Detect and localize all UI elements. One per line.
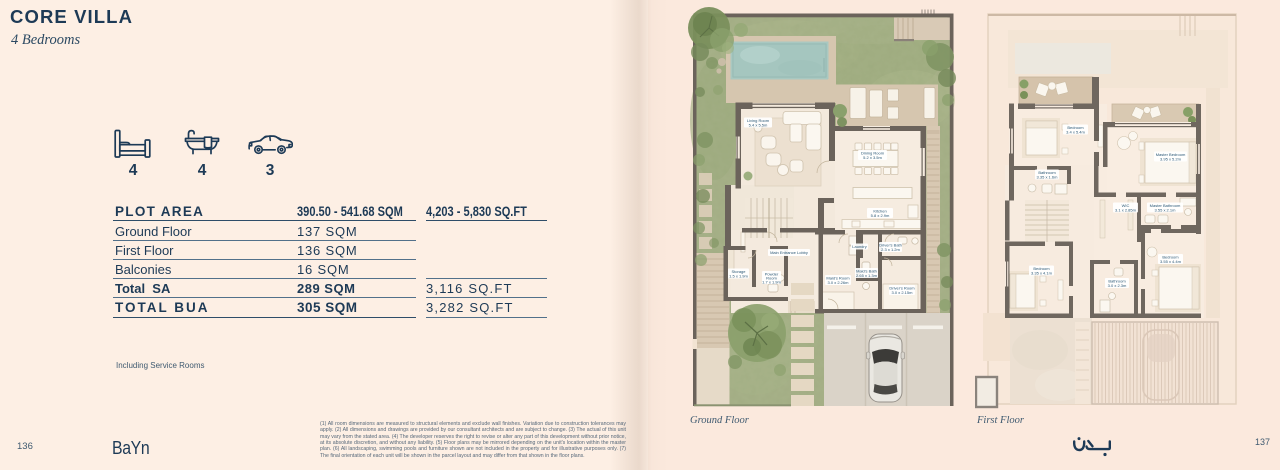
svg-text:3.0 x 2.26m: 3.0 x 2.26m	[828, 280, 850, 285]
svg-text:5.4 x 5.5m: 5.4 x 5.5m	[749, 123, 768, 128]
svg-text:3.0 x 2.15m: 3.0 x 2.15m	[892, 290, 914, 295]
svg-text:3.55 x 2.1m: 3.55 x 2.1m	[1155, 208, 1177, 213]
svg-text:1.5 x 1.9m: 1.5 x 1.9m	[729, 274, 748, 279]
svg-text:3.35 x 1.6m: 3.35 x 1.6m	[1037, 175, 1059, 180]
svg-text:1.7 x 1.9m: 1.7 x 1.9m	[762, 280, 781, 285]
svg-text:3.95 x 5.2m: 3.95 x 5.2m	[1160, 157, 1182, 162]
svg-text:Laundry: Laundry	[852, 244, 866, 249]
svg-text:Main Entrance Lobby: Main Entrance Lobby	[770, 250, 808, 255]
svg-text:3.55 x 4.4m: 3.55 x 4.4m	[1160, 259, 1182, 264]
svg-text:2.65 x 1.3m: 2.65 x 1.3m	[856, 273, 878, 278]
svg-text:5.8 x 2.9m: 5.8 x 2.9m	[871, 213, 890, 218]
svg-text:5.2 x 3.5m: 5.2 x 3.5m	[863, 155, 882, 160]
svg-text:3.35 x 4.1m: 3.35 x 4.1m	[1031, 271, 1053, 276]
svg-text:3.0 x 2.3m: 3.0 x 2.3m	[1108, 283, 1127, 288]
svg-text:3.4 x 5.4m: 3.4 x 5.4m	[1066, 130, 1085, 135]
svg-text:2.3 x 1.2m: 2.3 x 1.2m	[881, 247, 900, 252]
svg-text:3.1 x 2.85m: 3.1 x 2.85m	[1115, 208, 1137, 213]
